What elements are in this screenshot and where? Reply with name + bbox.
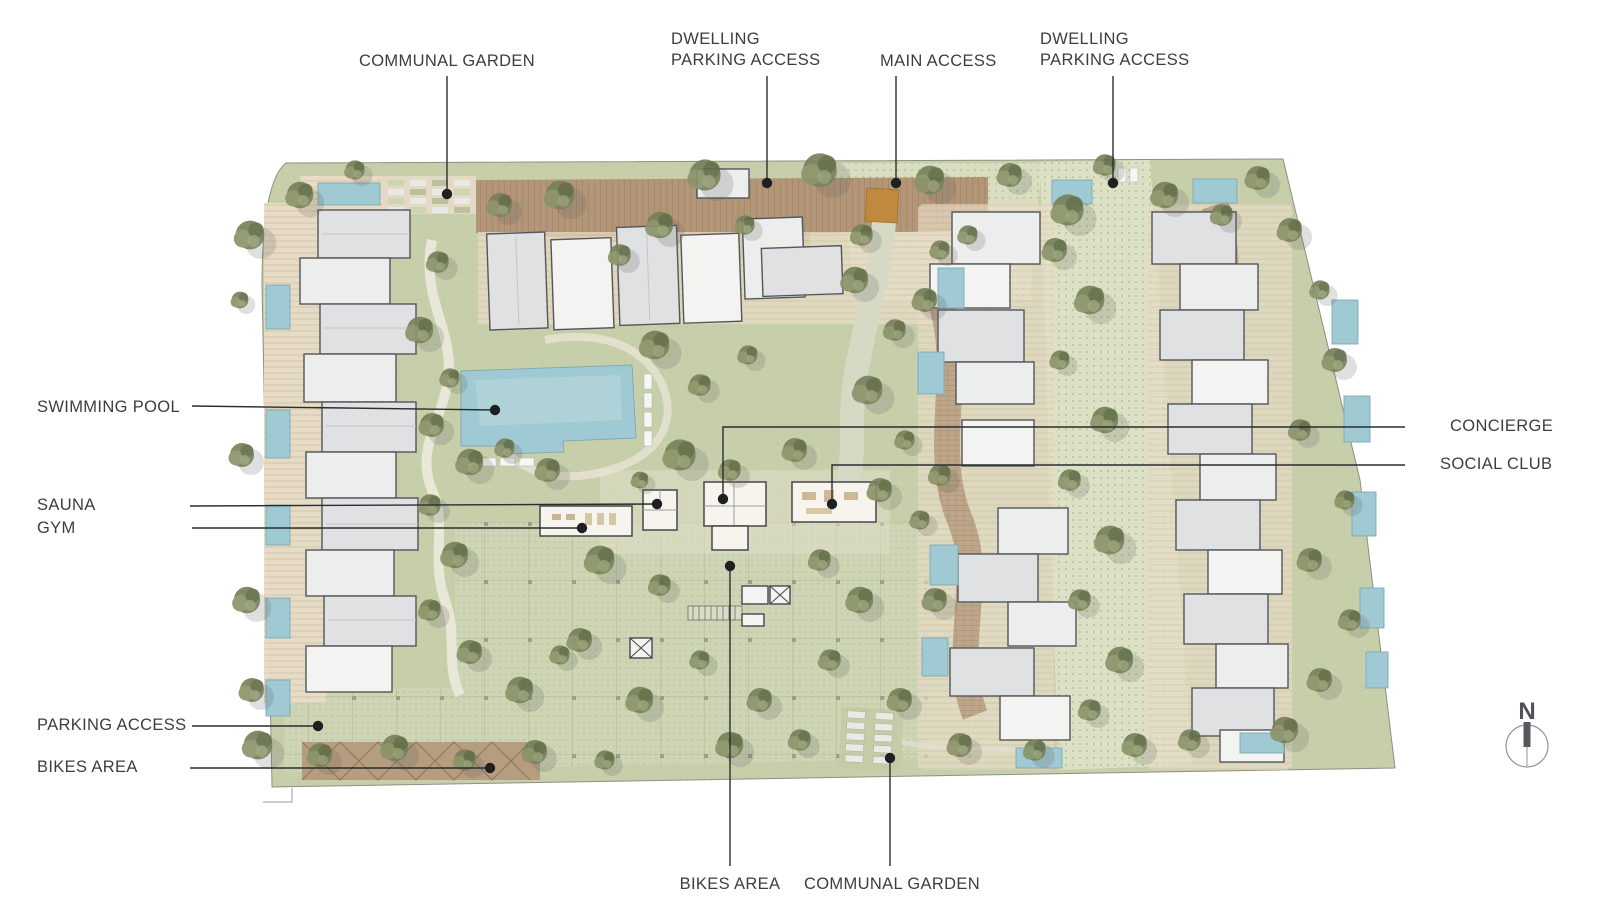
label-swimming-pool: SWIMMING POOL <box>37 397 180 418</box>
label-social-club: SOCIAL CLUB <box>1440 454 1552 475</box>
label-concierge: CONCIERGE <box>1450 416 1553 437</box>
label-dwelling-parking-access-1: DWELLING PARKING ACCESS <box>671 29 820 71</box>
north-label: N <box>1518 698 1535 725</box>
label-bikes-area-bottom: BIKES AREA <box>680 874 781 895</box>
label-gym: GYM <box>37 518 76 539</box>
communal-garden-bottom-plot <box>838 706 903 771</box>
site-plan-page: N COMMUNAL GARDEN DWELLING PARKING ACCES… <box>0 0 1600 916</box>
north-compass: N <box>1506 698 1548 767</box>
compass-needle-north <box>1524 722 1531 747</box>
site-plan-graphic: N <box>0 0 1600 916</box>
label-sauna: SAUNA <box>37 495 96 516</box>
main-access-marker <box>865 188 899 223</box>
bike-racks <box>688 606 742 620</box>
boundary-step-mark <box>263 788 292 802</box>
label-communal-garden-bottom: COMMUNAL GARDEN <box>804 874 980 895</box>
communal-garden-top-plot <box>382 176 476 214</box>
label-main-access: MAIN ACCESS <box>880 51 997 72</box>
label-parking-access: PARKING ACCESS <box>37 715 186 736</box>
label-communal-garden-top: COMMUNAL GARDEN <box>359 51 535 72</box>
sauna-building <box>643 490 677 530</box>
label-dwelling-parking-access-2: DWELLING PARKING ACCESS <box>1040 29 1189 71</box>
label-bikes-area-left: BIKES AREA <box>37 757 138 778</box>
gym-building <box>540 506 632 536</box>
